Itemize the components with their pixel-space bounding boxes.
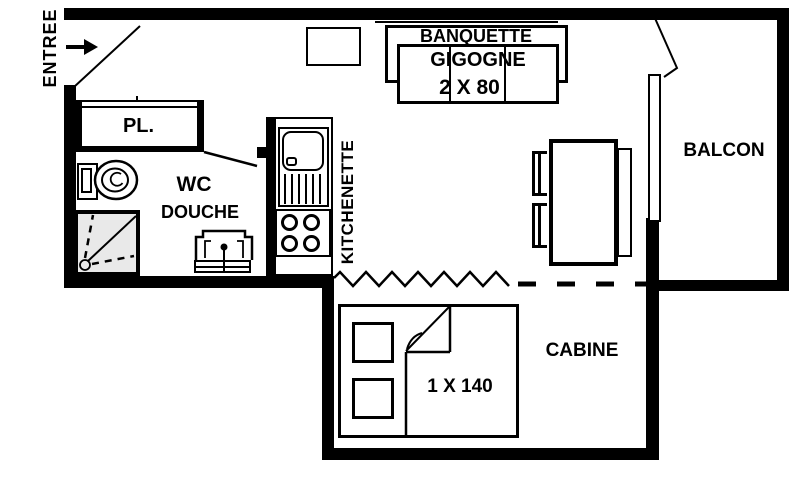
banquette-back-line <box>375 21 558 23</box>
pillow-icon <box>352 378 394 419</box>
entry-label: ENTREE <box>38 0 62 98</box>
washbasin-base <box>194 260 251 273</box>
bed-size-label: 1 X 140 <box>405 376 515 396</box>
banquette-size-label: 2 X 80 <box>397 77 542 97</box>
washbasin-icon <box>196 231 252 260</box>
wall-cabin-right <box>646 218 659 460</box>
drainboard-icon <box>284 174 324 204</box>
banquette-label: BANQUETTE <box>391 27 561 45</box>
wc-label: WC <box>164 174 224 194</box>
toilet-bowl-icon <box>95 161 137 199</box>
washbasin-tap <box>221 244 228 251</box>
burner-icon <box>303 235 320 252</box>
balcony-label: BALCON <box>679 140 769 160</box>
chair-back <box>538 206 541 245</box>
wall-right <box>777 8 789 291</box>
side-table-icon <box>306 27 361 66</box>
shower-tray-icon <box>74 210 140 276</box>
entry-arrow-head <box>84 39 98 55</box>
cabin-label: CABINE <box>537 340 627 360</box>
toilet-bowl-inner <box>102 169 128 192</box>
washbasin-base-line <box>196 266 249 268</box>
wall-cabin-left <box>322 276 334 460</box>
bench-icon <box>617 148 632 257</box>
burner-icon <box>281 214 298 231</box>
closet-rail-line <box>82 106 197 108</box>
pillow-icon <box>352 322 394 363</box>
wc-door-leaf <box>204 152 257 166</box>
sink-drain-icon <box>286 157 297 166</box>
floor-plan: ENTREE PL. WC DOUCHE KITCHENETTE BANQUET… <box>0 0 800 484</box>
wc-door-hinge <box>257 147 267 158</box>
entry-door-swing <box>74 26 140 87</box>
shower-label: DOUCHE <box>155 202 245 222</box>
wall-cabin-bottom <box>322 448 659 460</box>
toilet-flush-curl <box>111 173 123 186</box>
banquette-type-label: GIGOGNE <box>397 50 559 69</box>
washbasin-inner <box>205 241 243 258</box>
kitchenette-label: KITCHENETTE <box>338 132 356 272</box>
chair-icon <box>532 203 547 248</box>
table-icon <box>549 139 618 266</box>
partition-zigzag <box>334 272 509 286</box>
toilet-cistern-inner <box>81 168 92 193</box>
balcony-window-icon <box>648 74 661 222</box>
burner-icon <box>281 235 298 252</box>
wall-balcony-bottom <box>650 280 789 291</box>
wall-wc-bottom <box>64 276 334 288</box>
wall-top <box>64 8 789 20</box>
burner-icon <box>303 214 320 231</box>
chair-back <box>538 154 541 193</box>
wall-kitchenette <box>266 117 274 288</box>
balcony-door-leaf <box>654 16 677 77</box>
closet-label: PL. <box>86 115 191 137</box>
chair-icon <box>532 151 547 196</box>
toilet-cistern-icon <box>77 163 98 200</box>
